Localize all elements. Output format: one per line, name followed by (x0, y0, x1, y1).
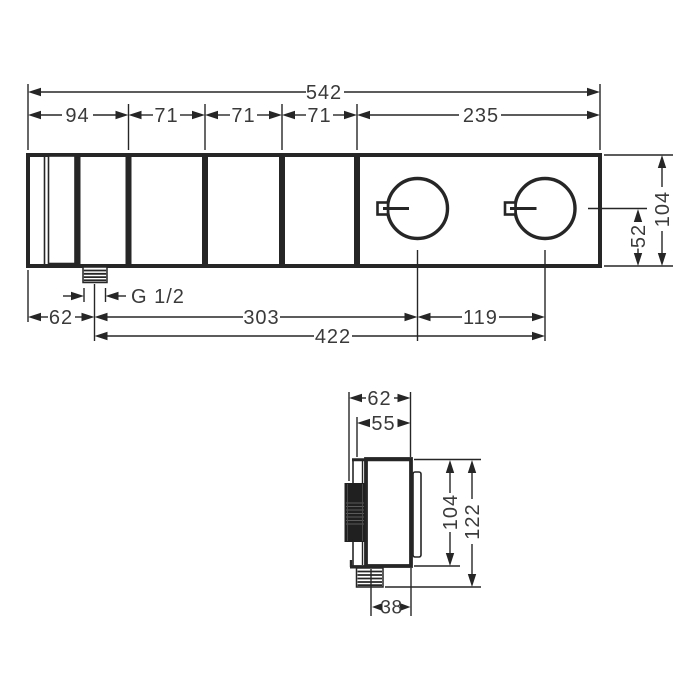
left-insert (49, 156, 76, 264)
outlet-thread-side (357, 568, 384, 587)
mixer-body (28, 155, 600, 283)
handle-knob-side (345, 483, 366, 542)
dim-depth-with-handle: 62 (367, 388, 391, 410)
dim-total-width: 542 (28, 82, 600, 104)
dim-segment-5: 235 (463, 105, 499, 127)
dim-outlet-to-first-knob: 303 (243, 307, 279, 329)
dim-segment-1: 94 (65, 105, 89, 127)
dim-outlet-from-left: 62 (49, 307, 73, 329)
thread-label: G 1/2 (131, 286, 185, 308)
dim-depth-body: 55 (371, 413, 395, 435)
side-view: 62 55 (345, 388, 485, 619)
dim-segment-2: 71 (154, 105, 178, 127)
dim-knob-spacing: 119 (463, 307, 498, 329)
drawing-canvas: 542 94 71 71 71 235 (0, 0, 700, 700)
side-body-outline (366, 459, 411, 566)
side-profile (345, 459, 422, 587)
dim-segment-row: 94 71 71 71 235 (28, 105, 600, 127)
thread-callout: G 1/2 (63, 286, 185, 308)
dim-outlet-from-wall-label: 38 (380, 598, 402, 619)
dim-knob-center-height: 52 (628, 224, 650, 248)
front-view: 542 94 71 71 71 235 (28, 82, 674, 348)
wall-plate (413, 472, 421, 557)
dim-row-62-303-119: 62 303 119 (28, 307, 545, 329)
dim-front-height: 104 (652, 191, 674, 227)
technical-drawing: 542 94 71 71 71 235 (0, 0, 700, 700)
dim-side-body-height: 104 (440, 494, 462, 530)
outlet-thread-front (83, 267, 107, 283)
dim-row-422: 422 (95, 326, 546, 348)
dim-segment-3: 71 (231, 105, 255, 127)
dim-segment-4: 71 (307, 105, 331, 127)
page: { "colors": { "line-color": "#262626", "… (0, 0, 700, 700)
dim-total-width-label: 542 (306, 82, 342, 104)
dim-side-total-height: 122 (462, 503, 484, 539)
dim-outlet-to-second-knob: 422 (315, 326, 351, 348)
